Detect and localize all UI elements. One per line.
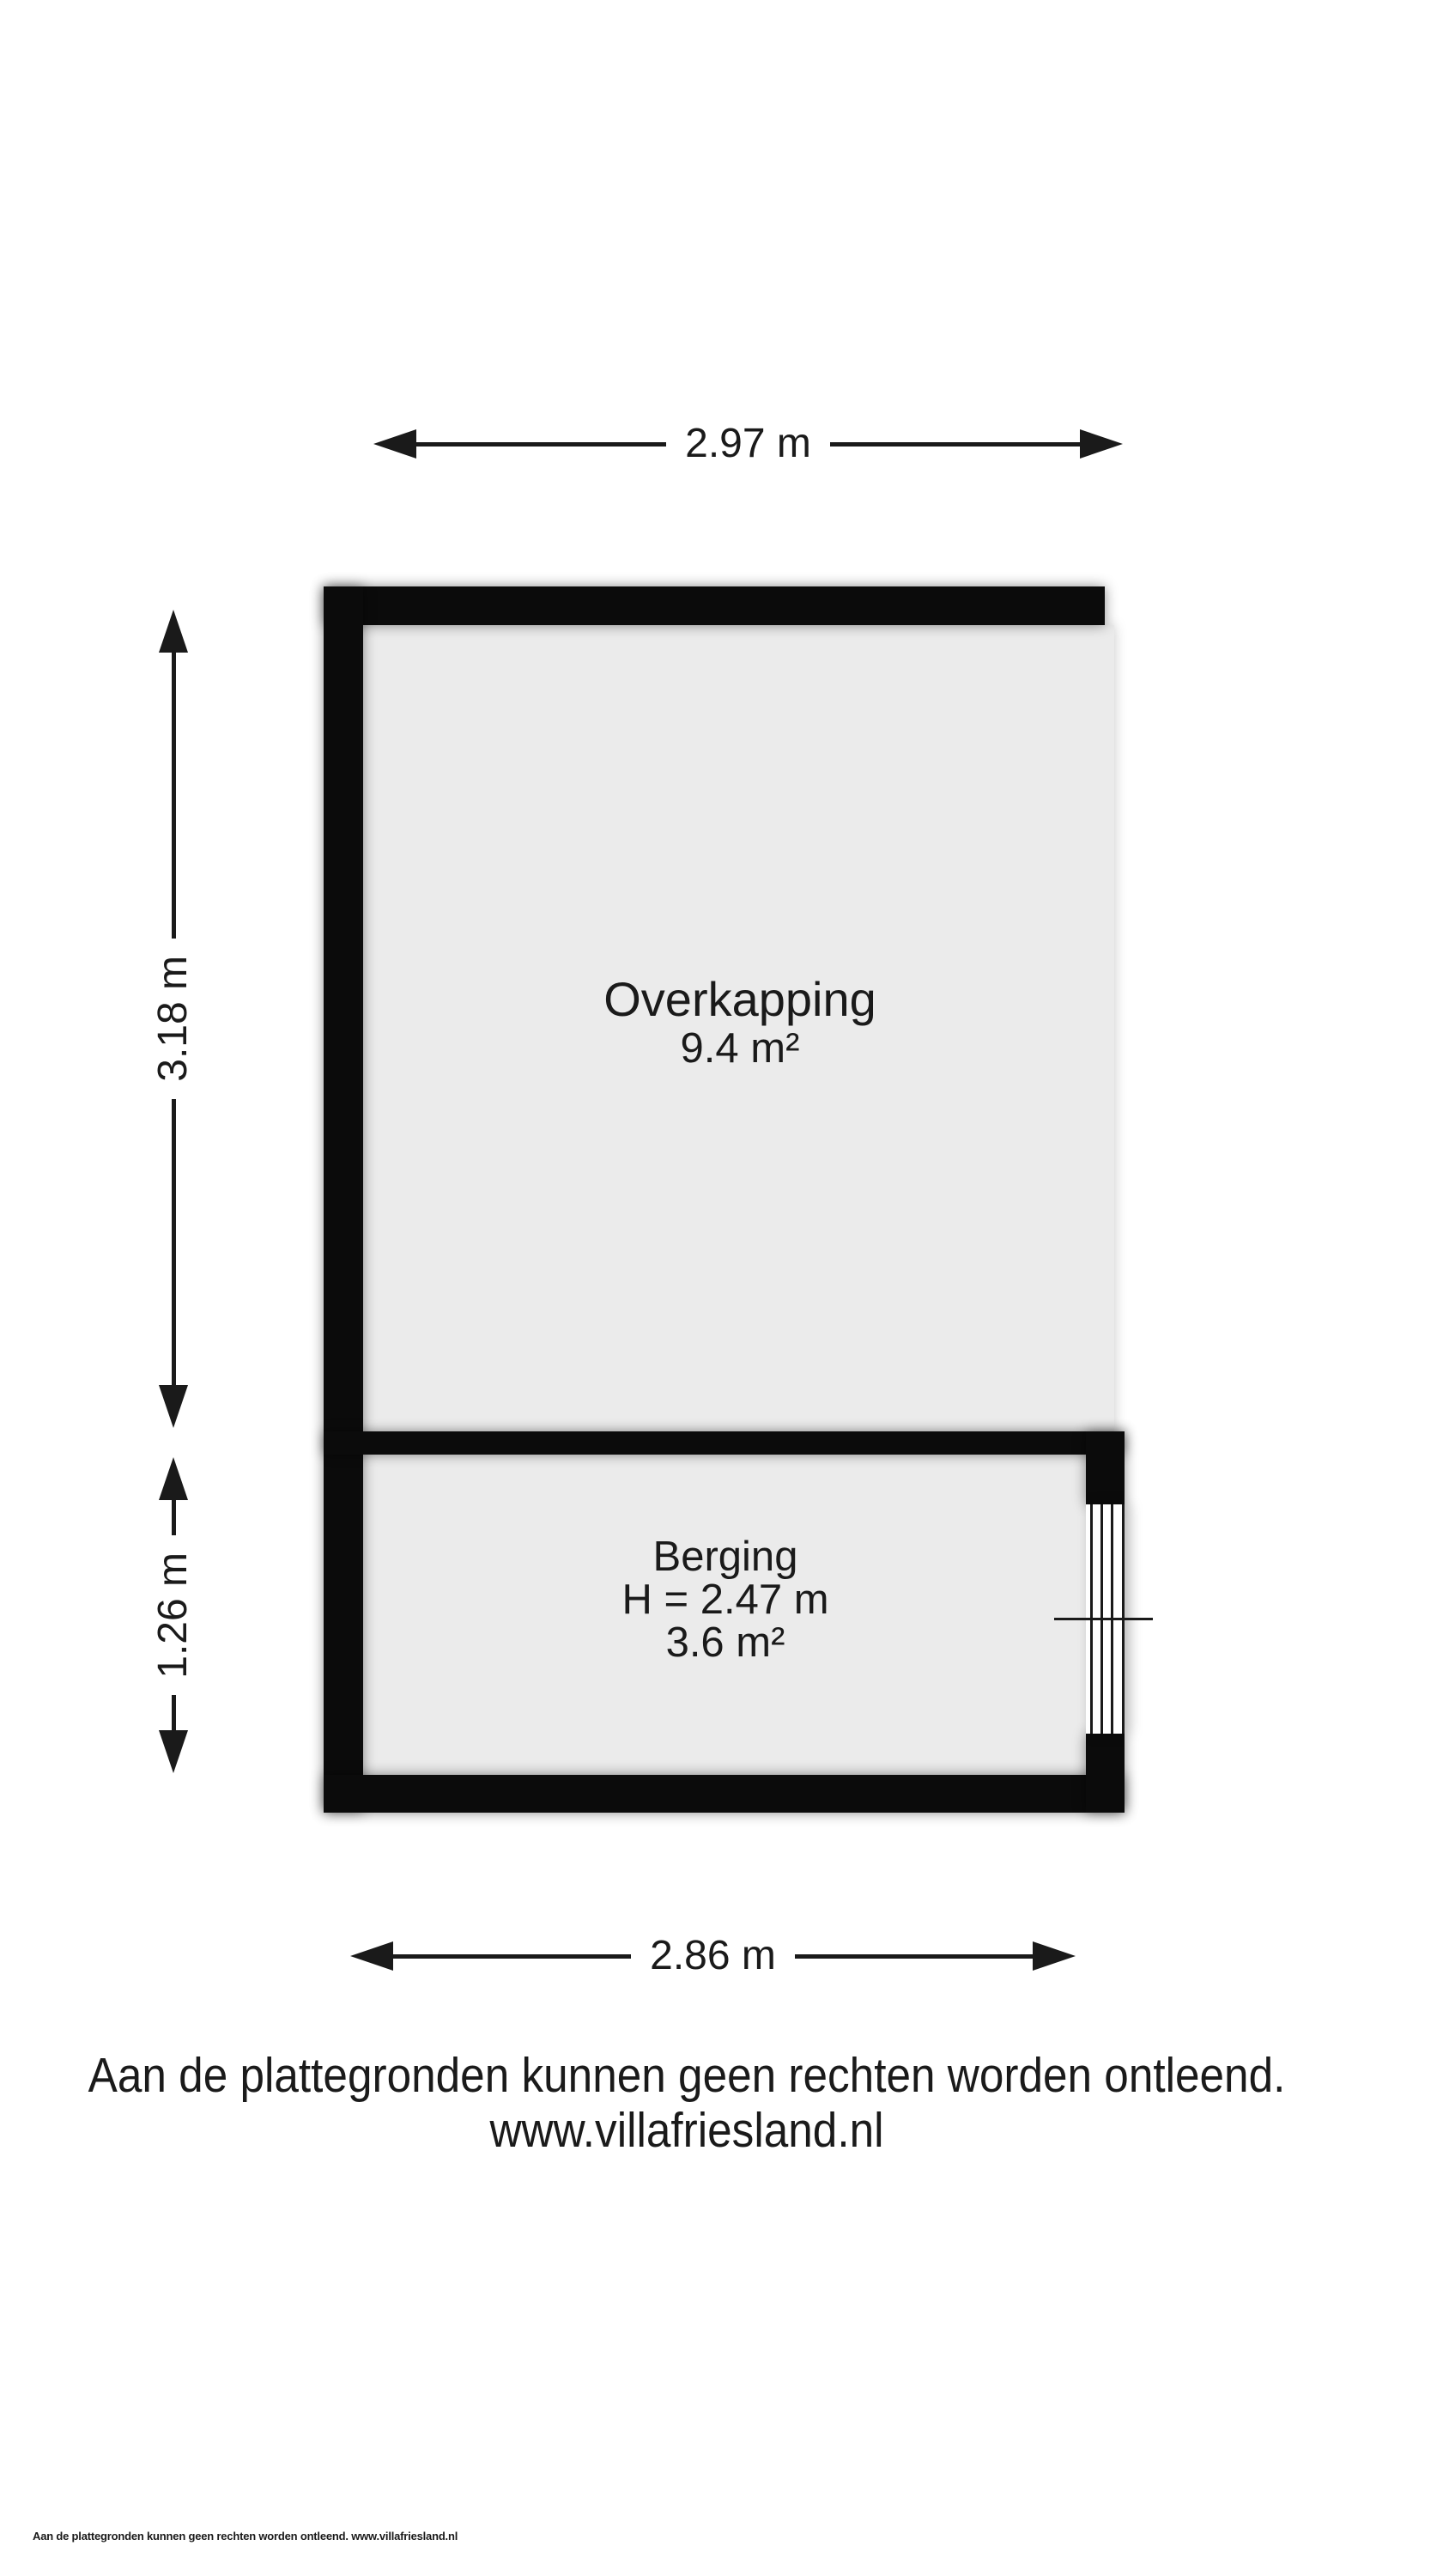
dimension-label: 2.97 m <box>666 423 830 465</box>
disclaimer-line1: Aan de plattegronden kunnen geen rechten… <box>88 2048 1286 2103</box>
wall-top <box>324 586 1105 625</box>
arrowhead-right-icon <box>1033 1941 1076 1971</box>
arrowhead-up-icon <box>159 610 188 653</box>
wall-bottom-right-post <box>1086 1734 1125 1813</box>
dimension-label: 1.26 m <box>153 1552 194 1679</box>
dimension-line <box>172 1500 176 1535</box>
room-overkapping-label: Overkapping 9.4 m² <box>603 972 876 1070</box>
arrowhead-left-icon <box>350 1941 393 1971</box>
arrowhead-right-icon <box>1080 429 1123 459</box>
room-name: Berging <box>621 1535 828 1578</box>
arrowhead-left-icon <box>373 429 416 459</box>
window-sill-line <box>1054 1618 1153 1620</box>
wall-middle <box>324 1431 1125 1455</box>
dimension-label: 2.86 m <box>631 1935 795 1977</box>
dimension-line <box>393 1954 631 1959</box>
dimension-line <box>830 442 1080 447</box>
disclaimer-text: Aan de plattegronden kunnen geen rechten… <box>88 2048 1286 2158</box>
arrowhead-up-icon <box>159 1457 188 1500</box>
wall-bottom <box>324 1775 1125 1813</box>
dimension-line <box>795 1954 1033 1959</box>
dimension-left-upper: 3.18 m <box>158 610 189 1428</box>
dimension-label: 3.18 m <box>153 956 194 1082</box>
room-name: Overkapping <box>603 972 876 1027</box>
disclaimer-line2: www.villafriesland.nl <box>88 2103 1286 2158</box>
dimension-line <box>416 442 666 447</box>
arrowhead-down-icon <box>159 1385 188 1428</box>
dimension-line <box>172 1695 176 1730</box>
room-height: H = 2.47 m <box>621 1578 828 1621</box>
dimension-bottom: 2.86 m <box>350 1941 1076 1971</box>
dimension-line <box>172 653 176 939</box>
footer-note: Aan de plattegronden kunnen geen rechten… <box>33 2530 458 2543</box>
room-area: 3.6 m² <box>621 1621 828 1664</box>
room-berging-label: Berging H = 2.47 m 3.6 m² <box>621 1535 828 1664</box>
arrowhead-down-icon <box>159 1730 188 1773</box>
dimension-left-lower: 1.26 m <box>158 1457 189 1773</box>
wall-middle-right-post <box>1086 1431 1125 1505</box>
room-area: 9.4 m² <box>603 1027 876 1070</box>
floorplan-canvas: 2.97 m 3.18 m 1.26 m 2.86 m Overkapping … <box>0 0 1449 2576</box>
dimension-top: 2.97 m <box>373 428 1123 459</box>
wall-left <box>324 586 363 1812</box>
dimension-line <box>172 1099 176 1385</box>
